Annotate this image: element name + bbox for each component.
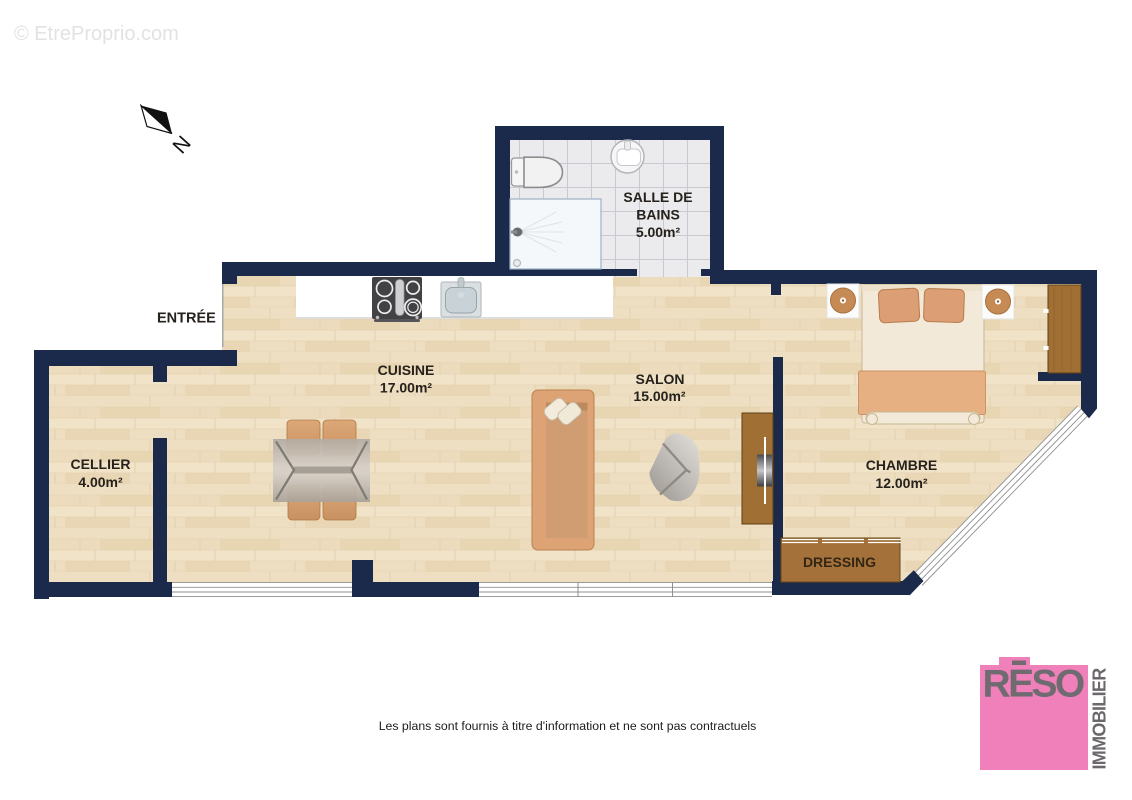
svg-text:© EtreProprio.com: © EtreProprio.com xyxy=(14,23,179,45)
svg-text:IMMOBILIER: IMMOBILIER xyxy=(1090,668,1110,770)
svg-text:RESO: RESO xyxy=(983,663,1084,706)
svg-text:DRESSING: DRESSING xyxy=(803,554,876,570)
svg-text:5.00m²: 5.00m² xyxy=(636,224,681,240)
svg-text:SALON: SALON xyxy=(636,371,685,387)
svg-text:Les plans sont fournis à titre: Les plans sont fournis à titre d'informa… xyxy=(379,719,757,733)
svg-text:SALLE DE: SALLE DE xyxy=(623,189,692,205)
svg-text:CUISINE: CUISINE xyxy=(378,362,435,378)
svg-text:4.00m²: 4.00m² xyxy=(78,474,123,490)
svg-text:CHAMBRE: CHAMBRE xyxy=(866,457,938,473)
svg-text:BAINS: BAINS xyxy=(636,207,680,223)
svg-text:17.00m²: 17.00m² xyxy=(380,380,432,396)
svg-text:15.00m²: 15.00m² xyxy=(633,388,685,404)
svg-text:ENTRÉE: ENTRÉE xyxy=(157,310,216,327)
svg-text:CELLIER: CELLIER xyxy=(71,456,131,472)
svg-text:12.00m²: 12.00m² xyxy=(875,475,927,491)
